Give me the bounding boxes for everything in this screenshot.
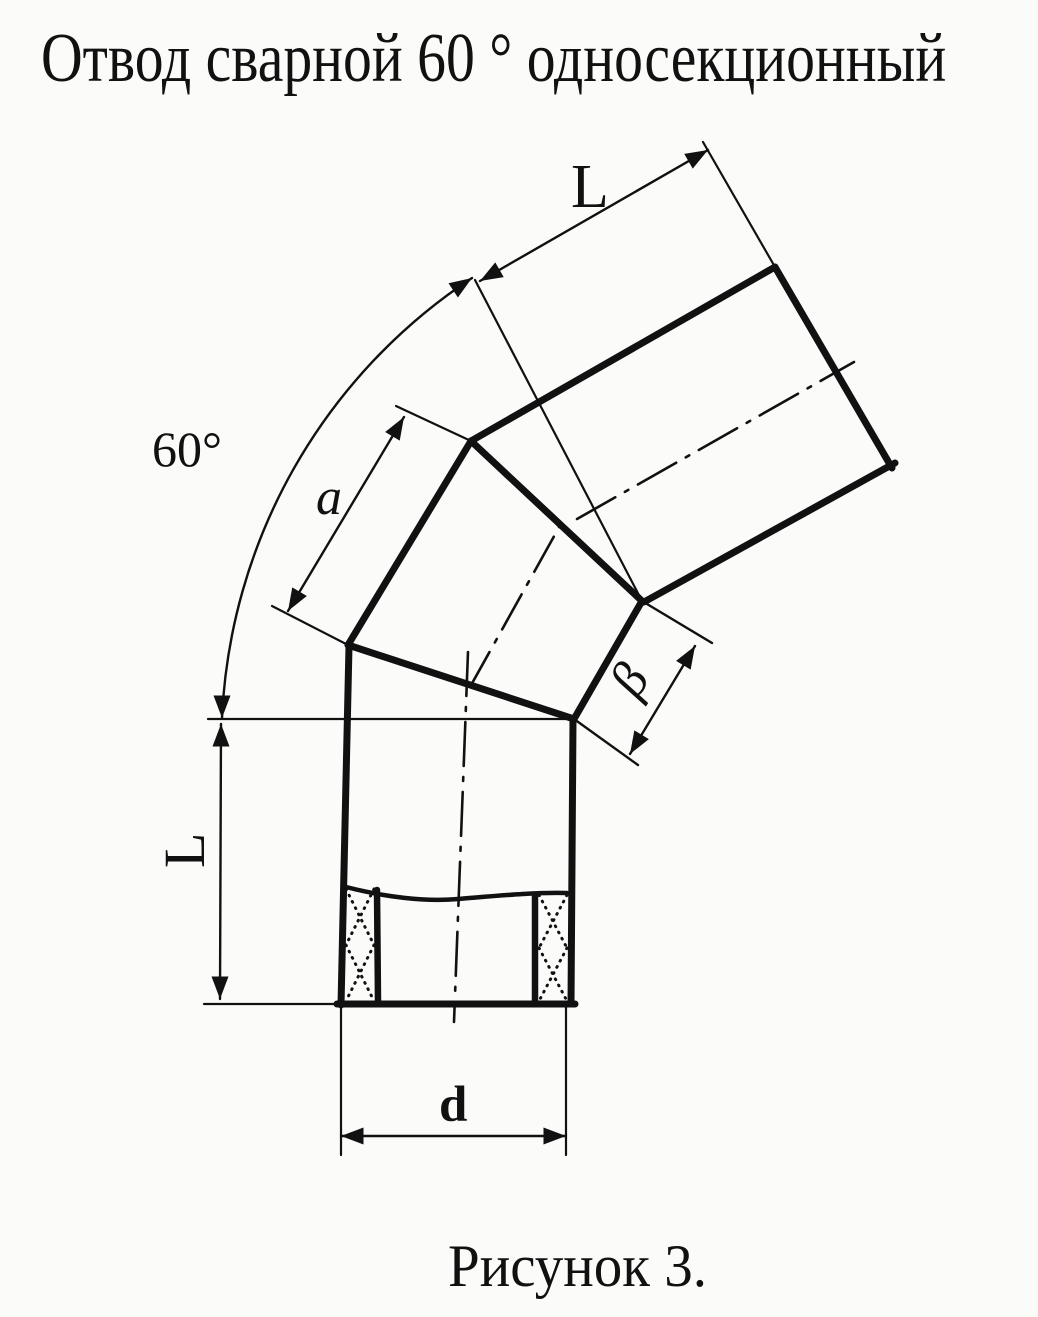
svg-text:a: a — [316, 469, 342, 526]
svg-text:d: d — [439, 1077, 467, 1133]
svg-text:60°: 60° — [152, 421, 222, 477]
svg-text:β: β — [598, 654, 661, 707]
svg-text:L: L — [571, 153, 609, 221]
svg-text:L: L — [152, 833, 217, 868]
